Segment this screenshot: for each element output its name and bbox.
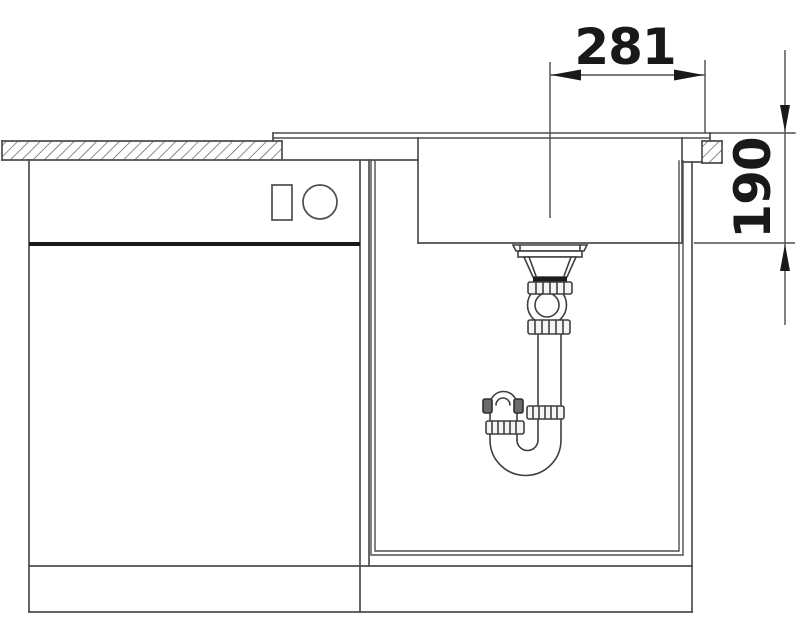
dimension-190-vertical: 190	[694, 50, 795, 325]
worktop-section	[2, 141, 722, 163]
dim-arrowhead-down-icon	[780, 105, 790, 132]
appliance-panel-knob	[303, 185, 337, 219]
base-cabinets	[29, 160, 692, 612]
sink-installation-section-drawing: 281 190	[0, 0, 800, 640]
dimension-190-label: 190	[724, 137, 782, 238]
drain-and-siphon	[483, 245, 587, 476]
union-wing-right	[514, 399, 523, 413]
dim-arrowhead-up-icon	[780, 244, 790, 271]
strainer-assembly	[513, 245, 587, 282]
plinth	[29, 566, 692, 612]
left-cabinet	[29, 160, 360, 566]
overflow-curl-inner	[535, 293, 559, 317]
technical-drawing-canvas: 281 190	[0, 0, 800, 640]
appliance-panel-rect	[272, 185, 292, 220]
worktop-hatch-left	[2, 141, 282, 160]
dimension-281-label: 281	[574, 18, 675, 76]
union-wing-left	[483, 399, 492, 413]
trap-u-bend	[490, 440, 561, 476]
dim-arrowhead-right-icon	[674, 70, 704, 81]
worktop-hatch-right	[702, 141, 722, 163]
